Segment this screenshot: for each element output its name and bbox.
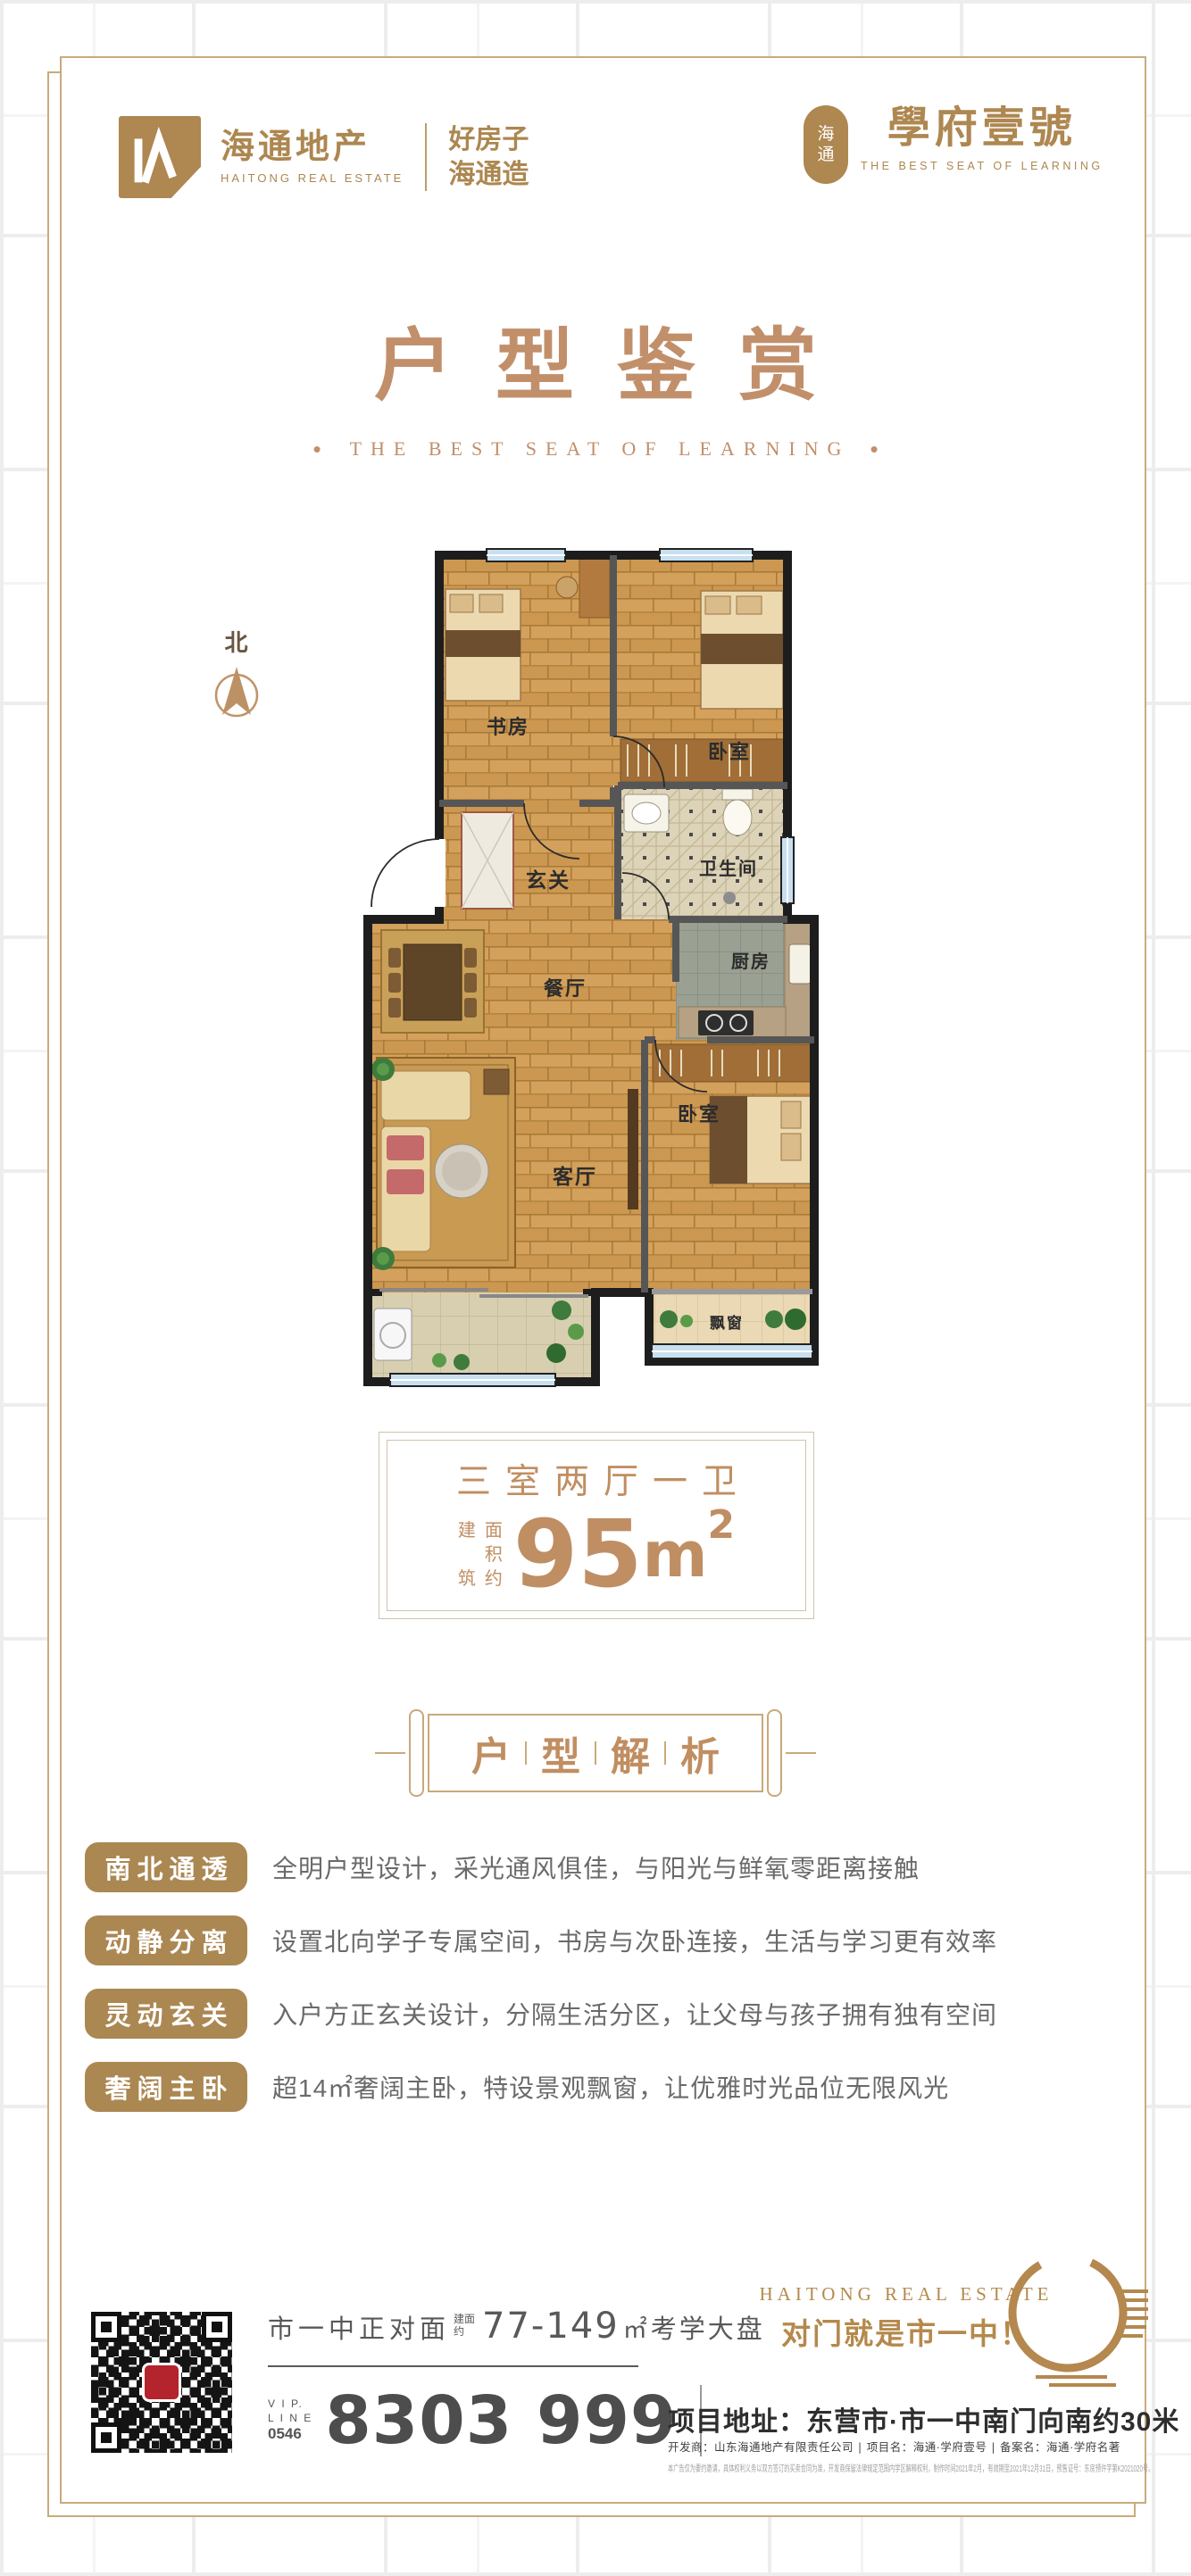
project-tagline: THE BEST SEAT OF LEARNING xyxy=(861,160,1104,172)
qr-finder-icon xyxy=(91,2422,121,2453)
feature-badge: 灵动玄关 xyxy=(85,1989,247,2039)
title-dot-right: • xyxy=(870,437,878,461)
qr-finder-icon xyxy=(202,2312,232,2342)
vip-line-block: V I P. L I N E 0546 8303 999 xyxy=(268,2385,702,2456)
room-label: 玄关 xyxy=(526,868,571,892)
seal-icon: 海 通 xyxy=(804,105,848,184)
room-label: 卧室 xyxy=(678,1103,720,1126)
room-label: 客厅 xyxy=(553,1165,597,1188)
feature-desc: 入户方正玄关设计，分隔生活分区，让父母与孩子拥有独有空间 xyxy=(272,1996,997,2032)
north-label: 北 xyxy=(198,625,275,658)
qr-code xyxy=(91,2312,232,2453)
feature-desc: 超14㎡奢阔主卧，特设景观飘窗，让优雅时光品位无限风光 xyxy=(272,2069,949,2105)
banner-line-left xyxy=(375,1752,405,1754)
area-info-box: 三室两厅一卫 建 筑 面 积 约 95 m 2 xyxy=(379,1432,814,1619)
banner-line-right xyxy=(786,1752,816,1754)
feature-list: 南北通透 全明户型设计，采光通风俱佳，与阳光与鲜氧零距离接触 动静分离 设置北向… xyxy=(85,1842,1125,2135)
floor-plan: 书房 卧室 玄关 卫生间 餐厅 厨房 客厅 卧室 飘窗 xyxy=(354,544,837,1391)
vip-label: V I P. L I N E 0546 xyxy=(268,2397,312,2444)
area-value: 95 xyxy=(513,1513,643,1597)
feature-badge: 动静分离 xyxy=(85,1915,247,1965)
banner-box: 户 型 解 析 xyxy=(428,1714,763,1792)
headline-area-prefix: 建面 约 xyxy=(454,2314,475,2339)
project-logo: 海 通 學府壹號 THE BEST SEAT OF LEARNING xyxy=(804,105,1104,184)
brand-slogan: 对门就是市一中！ xyxy=(714,2310,1098,2353)
headline-location: 市一中正对面 xyxy=(268,2308,450,2346)
feature-desc: 全明户型设计，采光通风俱佳，与阳光与鲜氧零距离接触 xyxy=(272,1849,920,1885)
section-banner: 户 型 解 析 xyxy=(375,1710,816,1796)
project-address: 项目地址：东营市·市一中南门向南约30米 xyxy=(668,2399,1179,2439)
headline-range: 77-149 xyxy=(482,2306,620,2347)
room-label: 卫生间 xyxy=(699,859,758,879)
logo-divider xyxy=(425,123,427,191)
north-compass: 北 xyxy=(198,625,275,725)
project-name: 學府壹號 xyxy=(861,105,1104,153)
phone-number: 8303 999 xyxy=(325,2388,677,2454)
title-dot-left: • xyxy=(312,437,321,461)
feature-row: 灵动玄关 入户方正玄关设计，分隔生活分区，让父母与孩子拥有独有空间 xyxy=(85,1989,1125,2039)
area-prefix: 建 筑 面 积 约 xyxy=(458,1522,503,1588)
haitong-logo-icon xyxy=(119,116,201,198)
qr-center-badge xyxy=(142,2363,181,2402)
headline-unit: ㎡ xyxy=(623,2310,647,2345)
room-label: 书房 xyxy=(487,716,529,738)
feature-row: 南北通透 全明户型设计，采光通风俱佳，与阳光与鲜氧零距离接触 xyxy=(85,1842,1125,1892)
feature-badge: 奢阔主卧 xyxy=(85,2062,247,2112)
headline-rule xyxy=(268,2365,638,2367)
developer-logo: 海通地产 HAITONG REAL ESTATE 好房子 海通造 xyxy=(119,116,529,198)
layout-type: 三室两厅一卫 xyxy=(442,1454,751,1504)
page-title-block: 户型鉴赏 • THE BEST SEAT OF LEARNING • xyxy=(0,328,1191,461)
banner-cap-left xyxy=(409,1709,424,1797)
room-label: 飘窗 xyxy=(710,1314,744,1332)
feature-row: 动静分离 设置北向学子专属空间，书房与次卧连接，生活与学习更有效率 xyxy=(85,1915,1125,1965)
room-label: 卧室 xyxy=(708,741,751,763)
poster: 海通地产 HAITONG REAL ESTATE 好房子 海通造 海 通 學府壹… xyxy=(0,0,1191,2576)
feature-row: 奢阔主卧 超14㎡奢阔主卧，特设景观飘窗，让优雅时光品位无限风光 xyxy=(85,2062,1125,2112)
banner-cap-right xyxy=(767,1709,782,1797)
logo-en-text: HAITONG REAL ESTATE xyxy=(221,171,404,185)
address-value: 东营市·市一中南门向南约30米 xyxy=(806,2407,1179,2437)
developer-line: 开发商：山东海通地产有限责任公司 ∣ 项目名：海通·学府壹号 ∣ 备案名：海通·… xyxy=(668,2438,1120,2455)
area-sup: 2 xyxy=(708,1502,736,1548)
footer-headline: 市一中正对面 建面 约 77-149 ㎡ 考学大盘 xyxy=(268,2306,765,2347)
room-label: 餐厅 xyxy=(544,977,587,1000)
page-subtitle: THE BEST SEAT OF LEARNING xyxy=(341,437,851,461)
brand-en: HAITONG REAL ESTATE xyxy=(714,2283,1098,2306)
disclaimer: 本广告仅为要约邀请，具体权利义务以双方签订的买卖合同为准，开发商保留法律规定范围… xyxy=(668,2461,1154,2474)
address-label: 项目地址： xyxy=(668,2407,806,2437)
feature-badge: 南北通透 xyxy=(85,1842,247,1892)
logo-cn-text: 海通地产 xyxy=(221,130,404,164)
room-label: 厨房 xyxy=(731,951,770,972)
logo-slogan: 好房子 海通造 xyxy=(448,122,529,192)
north-arrow-icon xyxy=(208,663,265,720)
area-unit: m xyxy=(643,1527,708,1583)
page-title: 户型鉴赏 xyxy=(0,328,1191,407)
feature-desc: 设置北向学子专属空间，书房与次卧连接，生活与学习更有效率 xyxy=(272,1923,997,1958)
qr-finder-icon xyxy=(91,2312,121,2342)
